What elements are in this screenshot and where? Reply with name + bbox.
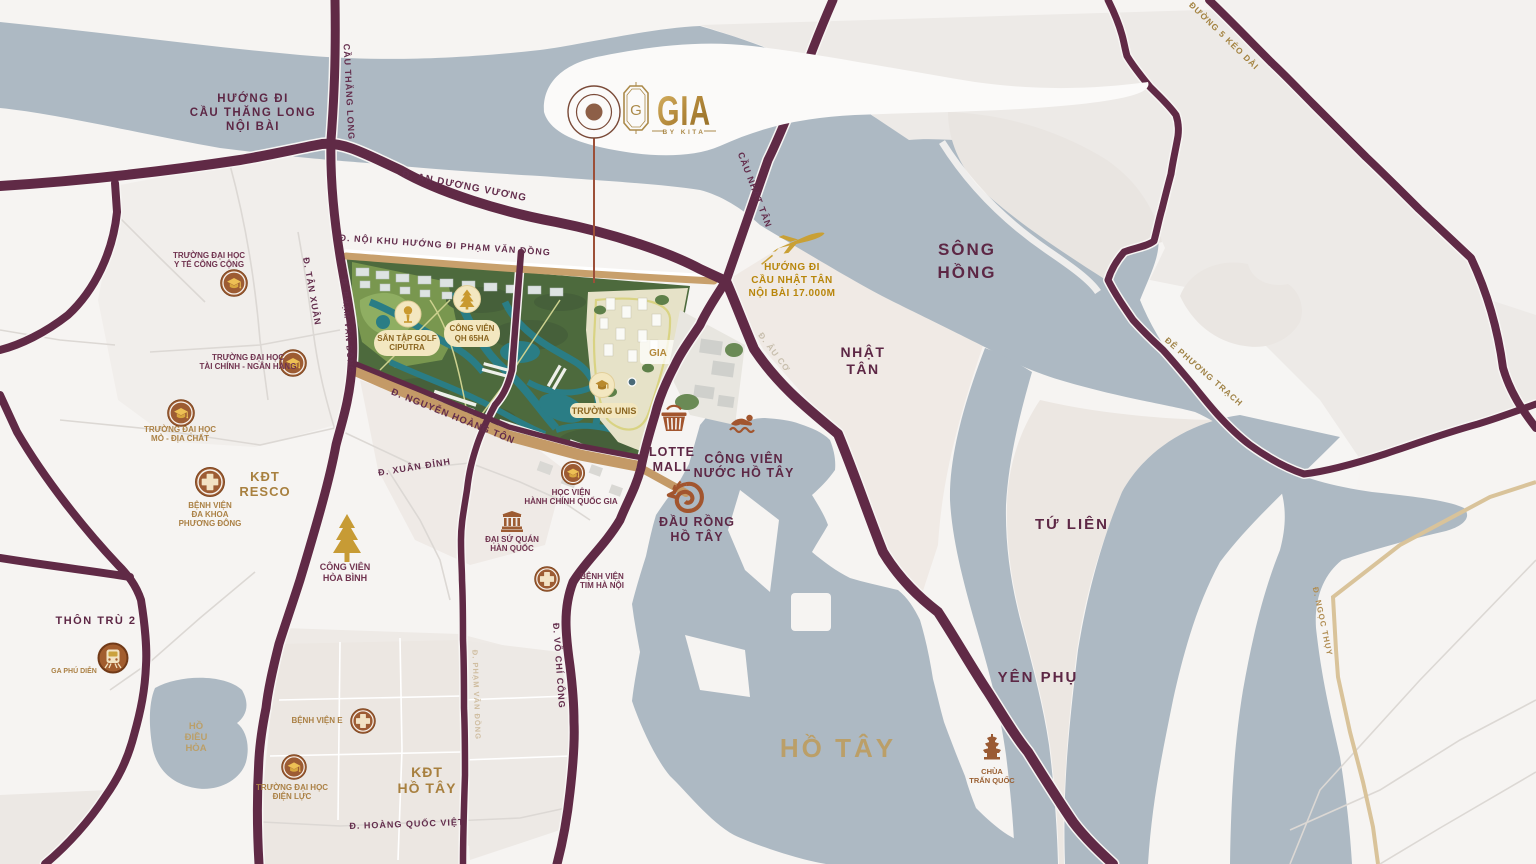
svg-text:NƯỚC HỒ TÂY: NƯỚC HỒ TÂY (694, 465, 795, 480)
svg-text:TRƯỜNG ĐẠI HỌC: TRƯỜNG ĐẠI HỌC (144, 425, 216, 434)
svg-text:GIA: GIA (649, 348, 667, 359)
svg-text:THÔN TRÙ 2: THÔN TRÙ 2 (56, 614, 137, 627)
svg-text:NHẬT: NHẬT (841, 343, 886, 360)
svg-text:TIM HÀ NỘI: TIM HÀ NỘI (580, 581, 624, 590)
svg-text:HỒNG: HỒNG (938, 263, 997, 282)
svg-text:NỘI BÀI 17.000M: NỘI BÀI 17.000M (749, 286, 836, 299)
svg-text:BỆNH VIỆN: BỆNH VIỆN (580, 572, 624, 581)
svg-text:CIPUTRA: CIPUTRA (389, 343, 425, 352)
svg-text:TRƯỜNG ĐẠI HỌC: TRƯỜNG ĐẠI HỌC (256, 783, 328, 792)
svg-text:HỌC VIỆN: HỌC VIỆN (552, 488, 591, 497)
svg-text:LOTTE: LOTTE (649, 445, 695, 459)
svg-text:CHÙA: CHÙA (981, 767, 1003, 776)
svg-text:HỒ TÂY: HỒ TÂY (780, 733, 896, 763)
svg-text:BY KITA: BY KITA (663, 129, 706, 136)
svg-text:RESCO: RESCO (239, 484, 290, 499)
svg-text:MALL: MALL (653, 460, 692, 474)
svg-text:TÂN: TÂN (846, 360, 879, 377)
svg-text:KĐT: KĐT (411, 764, 443, 780)
svg-text:KĐT: KĐT (250, 469, 280, 484)
svg-text:SÔNG: SÔNG (938, 240, 996, 259)
svg-text:HÒA: HÒA (185, 742, 206, 754)
svg-text:CÔNG VIÊN: CÔNG VIÊN (320, 561, 371, 572)
svg-text:SÂN TẬP GOLF: SÂN TẬP GOLF (377, 334, 437, 343)
svg-text:HƯỚNG ĐI: HƯỚNG ĐI (764, 260, 820, 273)
svg-text:HỒ TÂY: HỒ TÂY (670, 529, 723, 544)
svg-text:HỒ TÂY: HỒ TÂY (398, 779, 457, 796)
svg-text:ĐẦU RỒNG: ĐẦU RỒNG (659, 514, 735, 529)
svg-text:TRẤN QUỐC: TRẤN QUỐC (969, 775, 1015, 785)
svg-text:TÀI CHÍNH - NGÂN HÀNG: TÀI CHÍNH - NGÂN HÀNG (200, 362, 297, 371)
svg-text:YÊN PHỤ: YÊN PHỤ (998, 668, 1079, 686)
svg-text:ĐẠI SỨ QUÁN: ĐẠI SỨ QUÁN (485, 535, 539, 544)
svg-text:TỨ LIÊN: TỨ LIÊN (1035, 515, 1109, 533)
svg-text:QH 65HA: QH 65HA (455, 334, 490, 343)
svg-text:CẦU NHẬT TÂN: CẦU NHẬT TÂN (751, 273, 833, 286)
svg-text:TRƯỜNG ĐẠI HỌC: TRƯỜNG ĐẠI HỌC (212, 353, 284, 362)
svg-text:CẦU THĂNG LONG: CẦU THĂNG LONG (190, 106, 316, 119)
svg-text:G: G (630, 102, 642, 119)
svg-text:TRƯỜNG UNIS: TRƯỜNG UNIS (572, 405, 637, 416)
svg-text:BỆNH VIỆN E: BỆNH VIỆN E (291, 716, 343, 725)
svg-text:CÔNG VIÊN: CÔNG VIÊN (450, 324, 495, 333)
svg-text:BỆNH VIỆN: BỆNH VIỆN (188, 501, 232, 510)
svg-text:PHƯƠNG ĐÔNG: PHƯƠNG ĐÔNG (179, 519, 242, 528)
svg-text:HƯỚNG ĐI: HƯỚNG ĐI (217, 92, 289, 105)
svg-text:TRƯỜNG ĐẠI HỌC: TRƯỜNG ĐẠI HỌC (173, 251, 245, 260)
svg-text:NỘI BÀI: NỘI BÀI (226, 120, 280, 133)
svg-text:ĐIỆN LỰC: ĐIỆN LỰC (273, 792, 312, 801)
svg-text:HỒ: HỒ (189, 720, 203, 732)
svg-text:GIA: GIA (657, 88, 711, 134)
svg-text:ĐIỀU: ĐIỀU (185, 732, 208, 743)
svg-text:HÒA BÌNH: HÒA BÌNH (323, 572, 367, 583)
svg-text:CÔNG VIÊN: CÔNG VIÊN (704, 451, 783, 466)
svg-text:HÀN QUỐC: HÀN QUỐC (490, 543, 534, 553)
svg-text:ĐA KHOA: ĐA KHOA (191, 510, 228, 519)
svg-text:MỎ - ĐỊA CHẤT: MỎ - ĐỊA CHẤT (151, 433, 209, 443)
svg-text:HÀNH CHÍNH QUỐC GIA: HÀNH CHÍNH QUỐC GIA (524, 496, 618, 506)
svg-text:Y TẾ CÔNG CỘNG: Y TẾ CÔNG CỘNG (174, 259, 244, 269)
svg-text:GA PHÚ DIỄN: GA PHÚ DIỄN (51, 666, 97, 675)
